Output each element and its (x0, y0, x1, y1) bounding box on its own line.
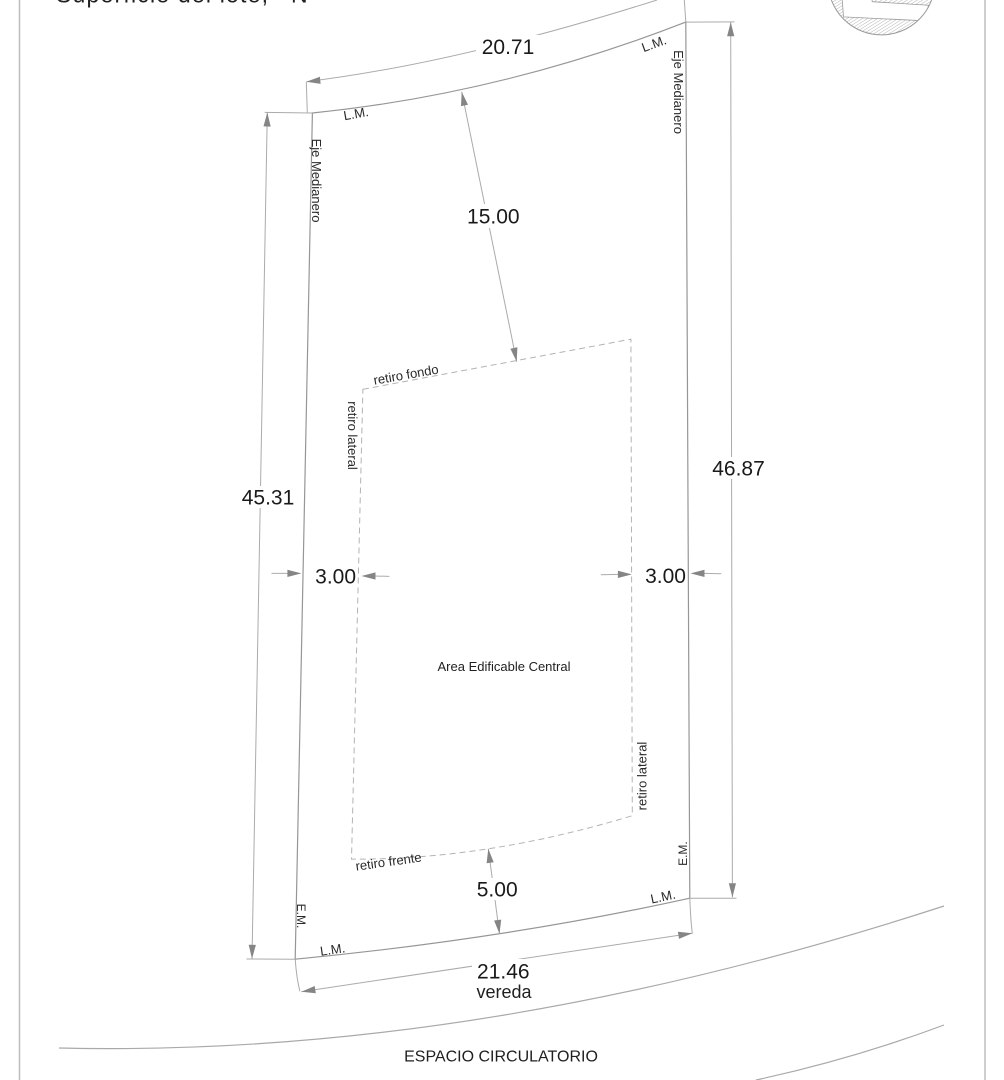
svg-text:15.00: 15.00 (467, 205, 520, 228)
svg-text:3.00: 3.00 (645, 565, 686, 588)
svg-text:Area Edificable Central: Area Edificable Central (438, 659, 571, 674)
svg-text:21.46: 21.46 (477, 960, 530, 983)
svg-text:retiro frente: retiro frente (355, 850, 423, 874)
svg-text:E.M.: E.M. (676, 841, 690, 866)
svg-text:3.00: 3.00 (315, 566, 356, 589)
svg-text:Eje Medianero: Eje Medianero (309, 139, 324, 223)
svg-text:5.00: 5.00 (477, 879, 518, 902)
svg-text:N: N (291, 0, 308, 8)
svg-text:retiro lateral: retiro lateral (635, 742, 650, 811)
svg-text:E.M.: E.M. (294, 904, 308, 929)
svg-text:vereda: vereda (476, 982, 532, 1002)
svg-text:45.31: 45.31 (242, 487, 295, 510)
svg-text:20.71: 20.71 (482, 36, 535, 59)
svg-text:Superficie del lote,: Superficie del lote, (56, 0, 269, 8)
svg-text:ESPACIO CIRCULATORIO: ESPACIO CIRCULATORIO (404, 1049, 598, 1066)
svg-text:Eje Medianero: Eje Medianero (671, 50, 686, 134)
svg-text:46.87: 46.87 (712, 458, 765, 481)
svg-text:L.M.: L.M. (342, 104, 370, 123)
svg-text:retiro fondo: retiro fondo (372, 362, 439, 388)
svg-text:retiro lateral: retiro lateral (345, 401, 360, 470)
svg-text:L.M.: L.M. (319, 940, 346, 958)
svg-text:L.M.: L.M. (649, 887, 677, 907)
svg-text:L.M.: L.M. (640, 32, 669, 55)
